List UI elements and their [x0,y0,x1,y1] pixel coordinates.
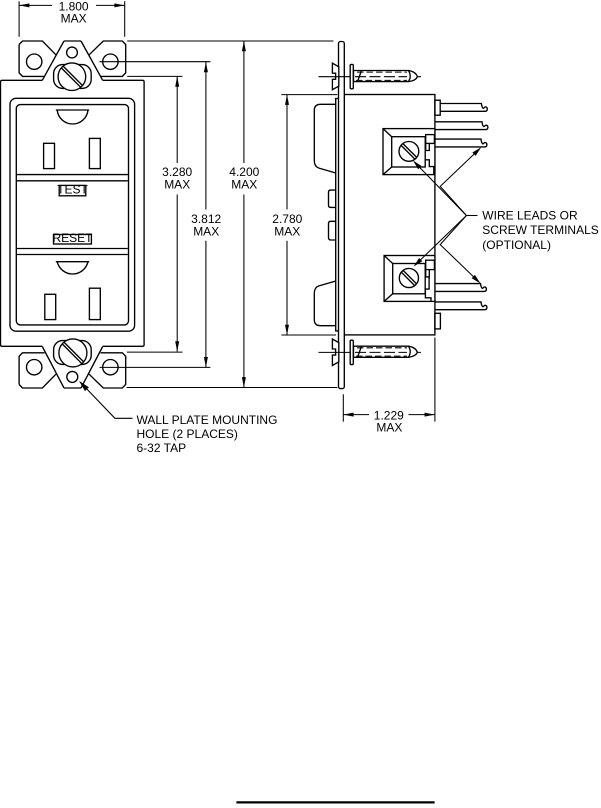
svg-text:MAX: MAX [164,178,190,192]
svg-text:RESET: RESET [52,231,93,245]
svg-text:SCREW TERMINALS: SCREW TERMINALS [482,223,598,237]
svg-text:6-32 TAP: 6-32 TAP [137,441,187,455]
svg-text:MAX: MAX [274,224,300,238]
svg-text:MAX: MAX [193,224,219,238]
svg-text:MAX: MAX [376,421,402,435]
svg-text:TEST: TEST [57,182,88,196]
svg-text:(OPTIONAL): (OPTIONAL) [482,238,551,252]
svg-text:WIRE LEADS OR: WIRE LEADS OR [482,209,578,223]
svg-text:MAX: MAX [61,11,87,25]
svg-text:MAX: MAX [231,178,257,192]
svg-text:WALL PLATE MOUNTING: WALL PLATE MOUNTING [137,413,278,427]
svg-text:HOLE (2 PLACES): HOLE (2 PLACES) [137,427,238,441]
